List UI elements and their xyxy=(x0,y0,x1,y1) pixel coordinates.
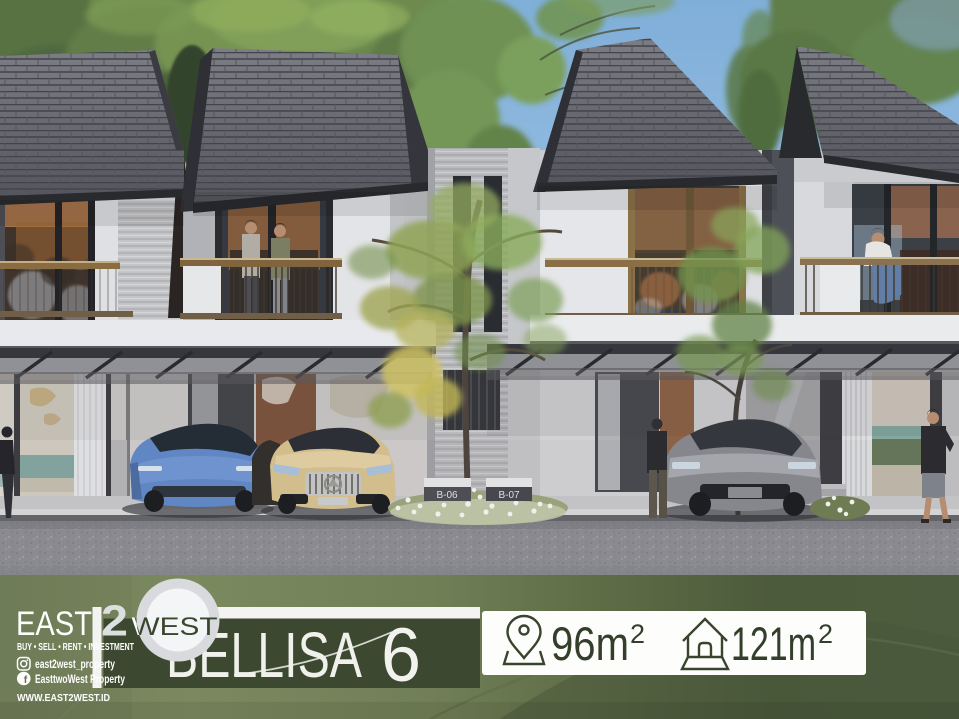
svg-text:f: f xyxy=(24,674,28,686)
svg-text:2: 2 xyxy=(630,619,645,649)
svg-text:6: 6 xyxy=(381,613,421,698)
svg-text:WWW.EAST2WEST.ID: WWW.EAST2WEST.ID xyxy=(17,693,110,704)
svg-text:WEST: WEST xyxy=(132,613,218,641)
svg-text:96m: 96m xyxy=(551,617,629,670)
svg-text:2: 2 xyxy=(101,597,128,646)
svg-text:2: 2 xyxy=(818,619,833,649)
svg-text:121m: 121m xyxy=(731,617,816,670)
svg-text:east2west_property: east2west_property xyxy=(35,659,115,671)
svg-text:BUY • SELL • RENT • INVESTMENT: BUY • SELL • RENT • INVESTMENT xyxy=(17,642,134,653)
svg-text:EasttwoWest Property: EasttwoWest Property xyxy=(35,674,125,686)
svg-text:EAST: EAST xyxy=(16,605,92,643)
